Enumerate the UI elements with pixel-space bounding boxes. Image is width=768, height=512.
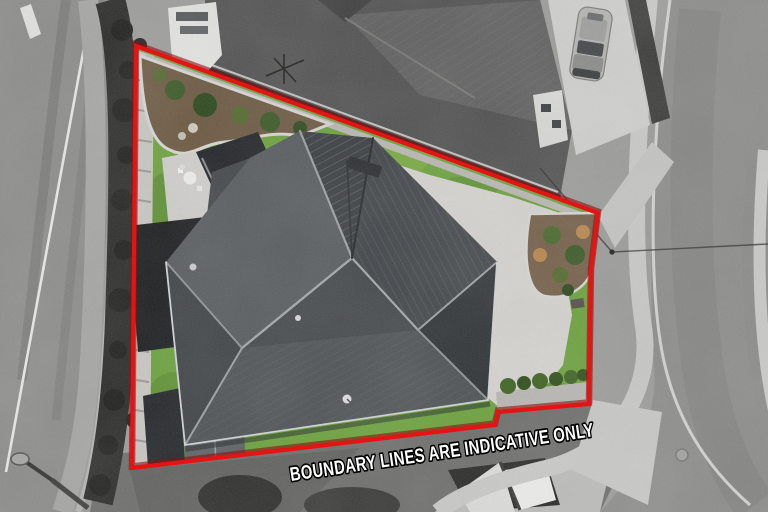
aerial-photo-canvas: BOUNDARY LINES ARE INDICATIVE ONLY (0, 0, 768, 512)
aerial-photo: BOUNDARY LINES ARE INDICATIVE ONLY (0, 0, 768, 512)
